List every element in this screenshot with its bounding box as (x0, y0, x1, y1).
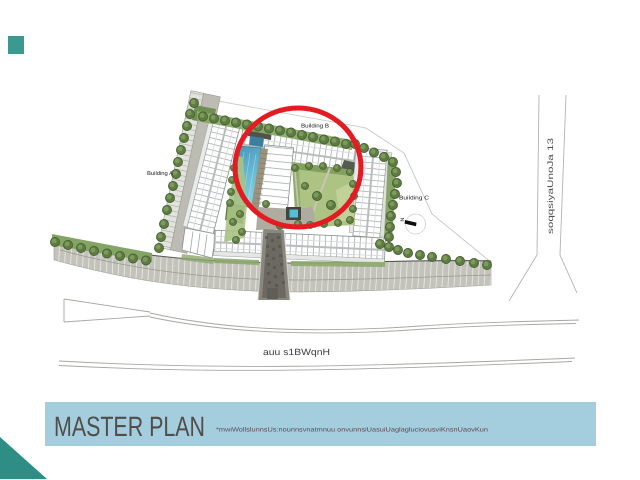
svg-text:*mwiWollslunnsUs:nounnsvnatmnu: *mwiWollslunnsUs:nounnsvnatmnuu onvunnsi… (216, 427, 489, 434)
svg-text:auu s1BWqnH: auu s1BWqnH (263, 347, 330, 357)
svg-text:MASTER PLAN: MASTER PLAN (54, 411, 205, 442)
svg-text:soqqsiyaUnoJa 13: soqqsiyaUnoJa 13 (546, 137, 555, 234)
svg-text:Building A: Building A (147, 170, 173, 177)
svg-text:Building B: Building B (301, 123, 329, 130)
svg-text:N: N (400, 218, 406, 222)
svg-text:Building C: Building C (399, 195, 429, 202)
